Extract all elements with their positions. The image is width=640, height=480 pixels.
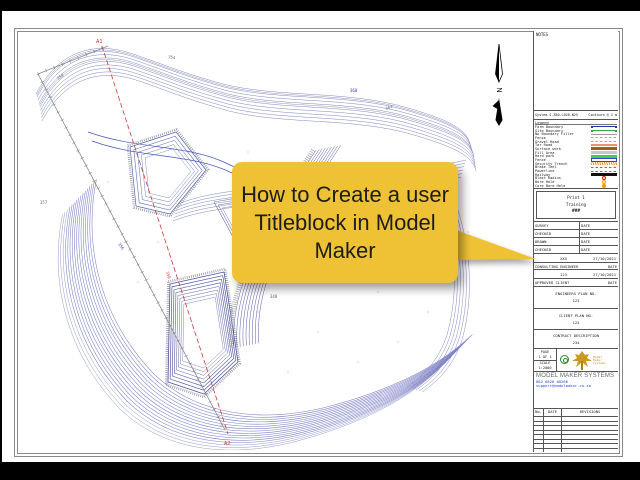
legend-item-swatch xyxy=(591,144,617,146)
approval-value: 123 xyxy=(534,272,593,277)
print-code: ### xyxy=(537,208,615,215)
revisions-no-header: No. xyxy=(534,409,544,416)
approval-date: 27/10/2021 xyxy=(593,256,618,261)
scale-value: 1:2000 xyxy=(534,366,556,371)
elevation-label: 350 xyxy=(56,72,65,81)
approved-client-row: APPROVED CLIENT DATE xyxy=(534,279,618,286)
revisions-date-header: DATE xyxy=(544,409,562,416)
ridge-contours xyxy=(36,48,476,171)
notes-box: NOTES xyxy=(534,31,618,111)
approved-client-date-label: DATE xyxy=(608,280,617,285)
north-label: N xyxy=(495,87,502,92)
page-scale-box: PAGE 1 OF 1 SCALE 1:2000 Model Maker Sys… xyxy=(534,349,618,372)
section-start-label: A1 xyxy=(96,39,103,45)
elevation-label: 356 xyxy=(117,242,126,251)
contours-label: Contours @ 1 m xyxy=(588,113,617,117)
tree-logo xyxy=(571,350,593,371)
callout-tail xyxy=(448,224,548,268)
contract-description-label: CONTRACT DESCRIPTION xyxy=(534,332,618,339)
letterbox-bottom xyxy=(0,462,640,480)
consulting-engineer-date-label: DATE xyxy=(608,264,617,269)
elevation-label: 354 xyxy=(168,54,177,60)
revisions-rows xyxy=(534,417,618,452)
legend-item-swatch xyxy=(591,141,617,142)
section-mid-label: 350 xyxy=(165,271,172,280)
print-project: Training xyxy=(537,201,615,208)
print-name: Print 1 xyxy=(537,194,615,201)
signoff-date-label: DATE xyxy=(581,223,590,228)
client-plan-box: CLIENT PLAN NO. 123 xyxy=(534,309,618,330)
approval-row: 123 27/10/2021 xyxy=(534,270,618,279)
legend-item-swatch xyxy=(591,171,617,172)
tree-logo-text: Model Maker Systems xyxy=(593,356,611,365)
system-row: System S-380-L028-N25 Contours @ 1 m xyxy=(534,111,618,120)
legend-item-swatch xyxy=(591,147,617,150)
company-email: support@modelmaker.co.za xyxy=(536,384,616,388)
legend-item-swatch xyxy=(591,137,617,138)
print-box: Print 1 Training ### xyxy=(534,189,618,222)
signoff-date-label: DATE xyxy=(581,239,590,244)
legend-item-swatch xyxy=(591,130,617,131)
legend-item-swatch xyxy=(591,134,617,135)
contract-description-value: 234 xyxy=(534,339,618,346)
engineers-plan-value: 123 xyxy=(534,297,618,304)
engineers-plan-label: ENGINEERS PLAN NO. xyxy=(534,290,618,297)
section-line: A1 A2 350 xyxy=(96,39,231,447)
approval-date: 27/10/2021 xyxy=(593,272,618,277)
legend-list: Farm Boundary Site Boundary No Boundary … xyxy=(535,125,617,188)
legend-item-label: Core Bore Hole xyxy=(535,184,602,188)
company-box: MODEL MAKER SYSTEMS 082 0826 08266 suppo… xyxy=(534,372,618,409)
legend-item-swatch xyxy=(602,184,606,188)
contract-description-box: CONTRACT DESCRIPTION 234 xyxy=(534,330,618,349)
system-label: System S-380-L028-N25 xyxy=(535,113,578,117)
engineers-plan-box: ENGINEERS PLAN NO. 123 xyxy=(534,287,618,309)
revisions-table: No. DATE REVISIONS xyxy=(534,409,618,452)
section-end-label: A2 xyxy=(224,441,231,447)
elevation-label: 357 xyxy=(40,200,48,205)
legend-item-swatch xyxy=(591,167,617,168)
client-plan-value: 123 xyxy=(534,319,618,326)
legend-item-swatch xyxy=(591,126,617,127)
elevation-label: 348 xyxy=(270,294,278,299)
revisions-title-header: REVISIONS xyxy=(562,409,618,416)
elevation-label: 360 xyxy=(350,88,358,93)
notes-label: NOTES xyxy=(536,32,548,37)
callout-text: How to Create a user Titleblock in Model… xyxy=(232,181,458,265)
upper-pit xyxy=(128,129,209,216)
revisions-empty-row xyxy=(534,449,618,453)
stamp-logo xyxy=(560,355,569,364)
revisions-header: No. DATE REVISIONS xyxy=(534,409,618,417)
ridge-contours-gray xyxy=(37,50,474,155)
legend-item-swatch xyxy=(591,151,617,154)
north-arrow-icon: N xyxy=(493,44,503,126)
signoff-date-label: DATE xyxy=(581,231,590,236)
letterbox-top xyxy=(0,0,640,11)
lower-dam xyxy=(166,269,239,397)
client-plan-label: CLIENT PLAN NO. xyxy=(534,312,618,319)
signoff-date-label: DATE xyxy=(581,247,590,252)
legend-item-swatch xyxy=(591,162,617,166)
callout-bubble: How to Create a user Titleblock in Model… xyxy=(232,162,458,283)
approved-client-label: APPROVED CLIENT xyxy=(535,280,569,285)
legend-box: Legend Farm Boundary Site Boundary No Bo… xyxy=(534,120,618,189)
video-frame: 350 354 360 362 357 356 348 344 A1 A2 35… xyxy=(0,0,640,480)
page-value: 1 OF 1 xyxy=(534,355,556,360)
legend-item: Core Bore Hole xyxy=(535,184,617,188)
